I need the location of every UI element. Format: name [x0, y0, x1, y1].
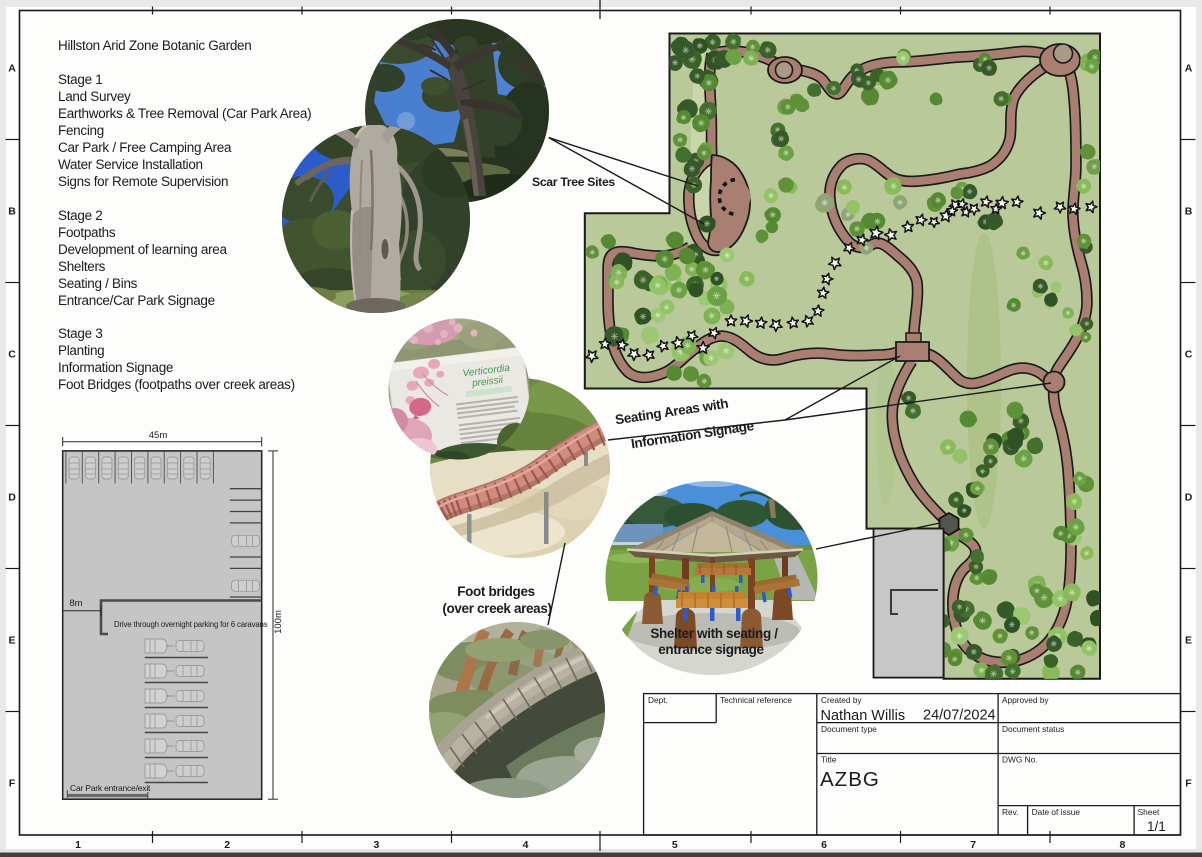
- svg-text:Sheet: Sheet: [1138, 807, 1160, 817]
- svg-text:Hillston Arid Zone Botanic Gar: Hillston Arid Zone Botanic Garden: [58, 38, 251, 53]
- svg-text:7: 7: [970, 839, 976, 851]
- svg-text:Seating / Bins: Seating / Bins: [58, 276, 138, 291]
- svg-text:Car Park / Free Camping Area: Car Park / Free Camping Area: [58, 140, 232, 155]
- svg-text:Land Survey: Land Survey: [58, 89, 131, 104]
- svg-text:Foot bridges: Foot bridges: [457, 584, 535, 599]
- svg-text:2: 2: [224, 839, 230, 851]
- svg-text:Development of learning area: Development of learning area: [58, 242, 228, 257]
- svg-text:Scar Tree Sites: Scar Tree Sites: [532, 175, 615, 189]
- svg-text:Shelters: Shelters: [58, 259, 106, 274]
- svg-text:Dept.: Dept.: [648, 695, 668, 705]
- svg-text:D: D: [8, 492, 16, 504]
- svg-text:Car Park entrance/exit: Car Park entrance/exit: [70, 783, 151, 793]
- svg-text:Stage 2: Stage 2: [58, 208, 102, 223]
- svg-text:100m: 100m: [273, 610, 284, 634]
- svg-text:Information Signage: Information Signage: [58, 360, 173, 375]
- svg-text:5: 5: [672, 839, 678, 851]
- svg-text:Title: Title: [821, 755, 837, 765]
- svg-text:Document type: Document type: [821, 724, 877, 734]
- svg-text:Technical reference: Technical reference: [720, 695, 792, 705]
- svg-text:F: F: [1185, 778, 1192, 790]
- svg-text:3: 3: [373, 839, 379, 851]
- svg-text:AZBG: AZBG: [820, 768, 880, 791]
- svg-text:Date of issue: Date of issue: [1032, 807, 1081, 817]
- svg-text:Earthworks & Tree Removal (Car: Earthworks & Tree Removal (Car Park Area…: [58, 106, 311, 121]
- svg-text:1: 1: [75, 839, 81, 851]
- svg-text:Signs for Remote Supervision: Signs for Remote Supervision: [58, 174, 228, 189]
- svg-text:8m: 8m: [69, 598, 82, 609]
- svg-text:6: 6: [821, 839, 827, 851]
- svg-text:C: C: [1185, 349, 1193, 361]
- svg-text:A: A: [1185, 63, 1193, 75]
- svg-text:entrance signage: entrance signage: [658, 642, 764, 657]
- svg-text:D: D: [1185, 492, 1193, 504]
- svg-text:Entrance/Car Park Signage: Entrance/Car Park Signage: [58, 293, 215, 308]
- svg-text:F: F: [9, 778, 16, 790]
- svg-text:8: 8: [1119, 839, 1125, 851]
- svg-text:45m: 45m: [149, 430, 168, 441]
- svg-text:Foot Bridges (footpaths over c: Foot Bridges (footpaths over creek areas…: [58, 377, 295, 392]
- svg-text:Fencing: Fencing: [58, 123, 104, 138]
- svg-text:Planting: Planting: [58, 343, 104, 358]
- svg-text:Footpaths: Footpaths: [58, 225, 116, 240]
- svg-text:(over creek areas): (over creek areas): [442, 601, 551, 616]
- svg-text:24/07/2024: 24/07/2024: [923, 708, 996, 724]
- svg-text:1/1: 1/1: [1147, 819, 1166, 834]
- svg-text:Rev.: Rev.: [1002, 807, 1018, 817]
- svg-text:A: A: [8, 63, 16, 75]
- svg-text:4: 4: [523, 839, 529, 851]
- svg-text:Shelter with seating /: Shelter with seating /: [650, 626, 778, 641]
- svg-text:B: B: [8, 206, 16, 218]
- svg-text:E: E: [8, 635, 15, 647]
- svg-text:Stage 3: Stage 3: [58, 326, 102, 341]
- svg-text:Stage 1: Stage 1: [58, 72, 102, 87]
- svg-text:Nathan Willis: Nathan Willis: [821, 708, 906, 724]
- svg-text:E: E: [1185, 635, 1192, 647]
- svg-text:B: B: [1185, 206, 1193, 218]
- svg-text:Created by: Created by: [821, 695, 862, 705]
- svg-text:Drive through overnight parkin: Drive through overnight parking for 6 ca…: [114, 620, 268, 629]
- svg-text:Water Service Installation: Water Service Installation: [58, 157, 203, 172]
- svg-text:Document status: Document status: [1002, 724, 1064, 734]
- svg-text:C: C: [8, 349, 16, 361]
- svg-text:Approved by: Approved by: [1002, 695, 1049, 705]
- svg-text:DWG No.: DWG No.: [1002, 755, 1038, 765]
